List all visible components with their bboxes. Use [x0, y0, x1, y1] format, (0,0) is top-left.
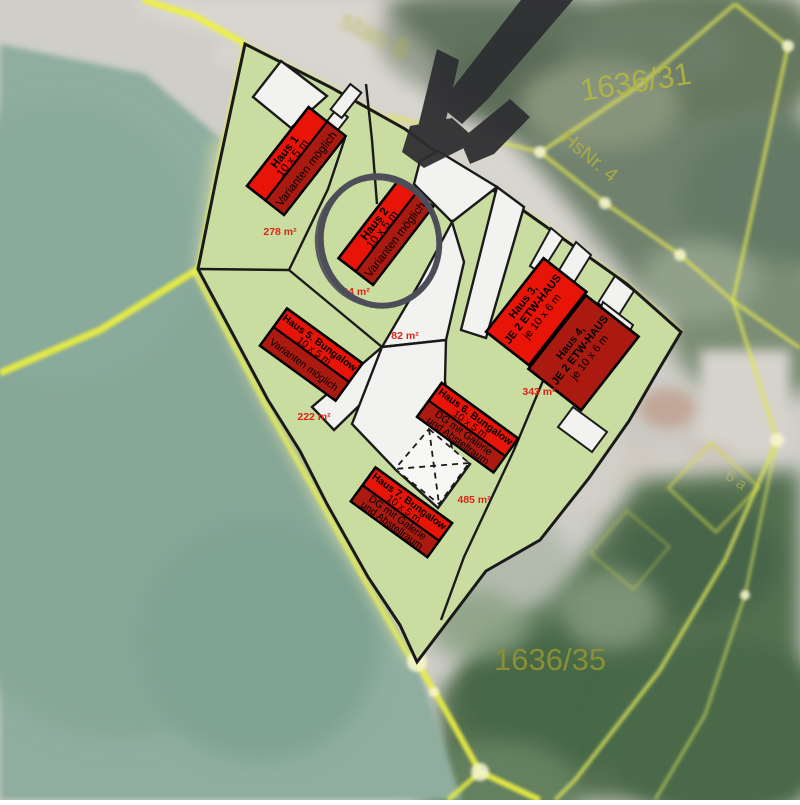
svg-text:1636/35: 1636/35	[494, 642, 606, 677]
svg-text:82 m²: 82 m²	[391, 330, 419, 342]
svg-text:278 m²: 278 m²	[263, 226, 297, 238]
svg-text:222 m²: 222 m²	[297, 411, 331, 423]
svg-text:343 m²: 343 m²	[522, 386, 556, 398]
svg-text:485 m²: 485 m²	[457, 494, 491, 506]
